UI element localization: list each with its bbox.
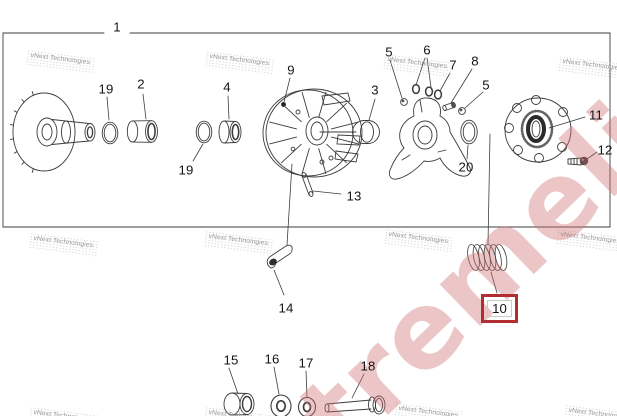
callout-20[interactable]: 20 xyxy=(458,160,473,175)
callout-15[interactable]: 15 xyxy=(223,353,238,368)
callout-14[interactable]: 14 xyxy=(278,301,293,316)
roller-3 xyxy=(353,121,380,144)
movable-sheave-hub xyxy=(263,89,362,177)
callout-6[interactable]: 6 xyxy=(423,43,431,58)
callout-5-right[interactable]: 5 xyxy=(482,78,490,93)
callout-19-left[interactable]: 19 xyxy=(98,82,113,97)
callout-8[interactable]: 8 xyxy=(471,54,479,69)
callout-13[interactable]: 13 xyxy=(346,189,361,204)
drive-clutch-face xyxy=(10,92,95,173)
callout-4[interactable]: 4 xyxy=(223,80,231,95)
callout-18[interactable]: 18 xyxy=(360,359,375,374)
pin-8 xyxy=(442,102,456,111)
callout-10[interactable]: 10 xyxy=(487,300,512,317)
callout-3[interactable]: 3 xyxy=(371,83,379,98)
snap-ring-19-right xyxy=(196,121,212,143)
callout-16[interactable]: 16 xyxy=(264,352,279,367)
callout-19-right[interactable]: 19 xyxy=(178,163,193,178)
callout-2[interactable]: 2 xyxy=(137,77,145,92)
ring-20 xyxy=(461,120,477,144)
callout-5-left[interactable]: 5 xyxy=(385,45,393,60)
highlighted-callout-10-box[interactable]: 10 xyxy=(481,294,518,323)
callout-9[interactable]: 9 xyxy=(287,63,295,78)
ball-5-right xyxy=(459,108,466,115)
snap-ring-19-left xyxy=(102,122,118,144)
callout-11[interactable]: 11 xyxy=(589,108,603,123)
exploded-parts-diagram: vNext Technologies vNext Technologies vN… xyxy=(0,0,617,416)
bushing-2 xyxy=(127,121,157,143)
rings-6-7 xyxy=(413,85,442,99)
bushing-4 xyxy=(219,121,241,143)
callout-17[interactable]: 17 xyxy=(298,356,313,371)
callout-7[interactable]: 7 xyxy=(449,58,457,73)
callout-1[interactable]: 1 xyxy=(113,20,121,35)
ball-5-left xyxy=(401,99,408,106)
callout-12[interactable]: 12 xyxy=(597,143,612,158)
